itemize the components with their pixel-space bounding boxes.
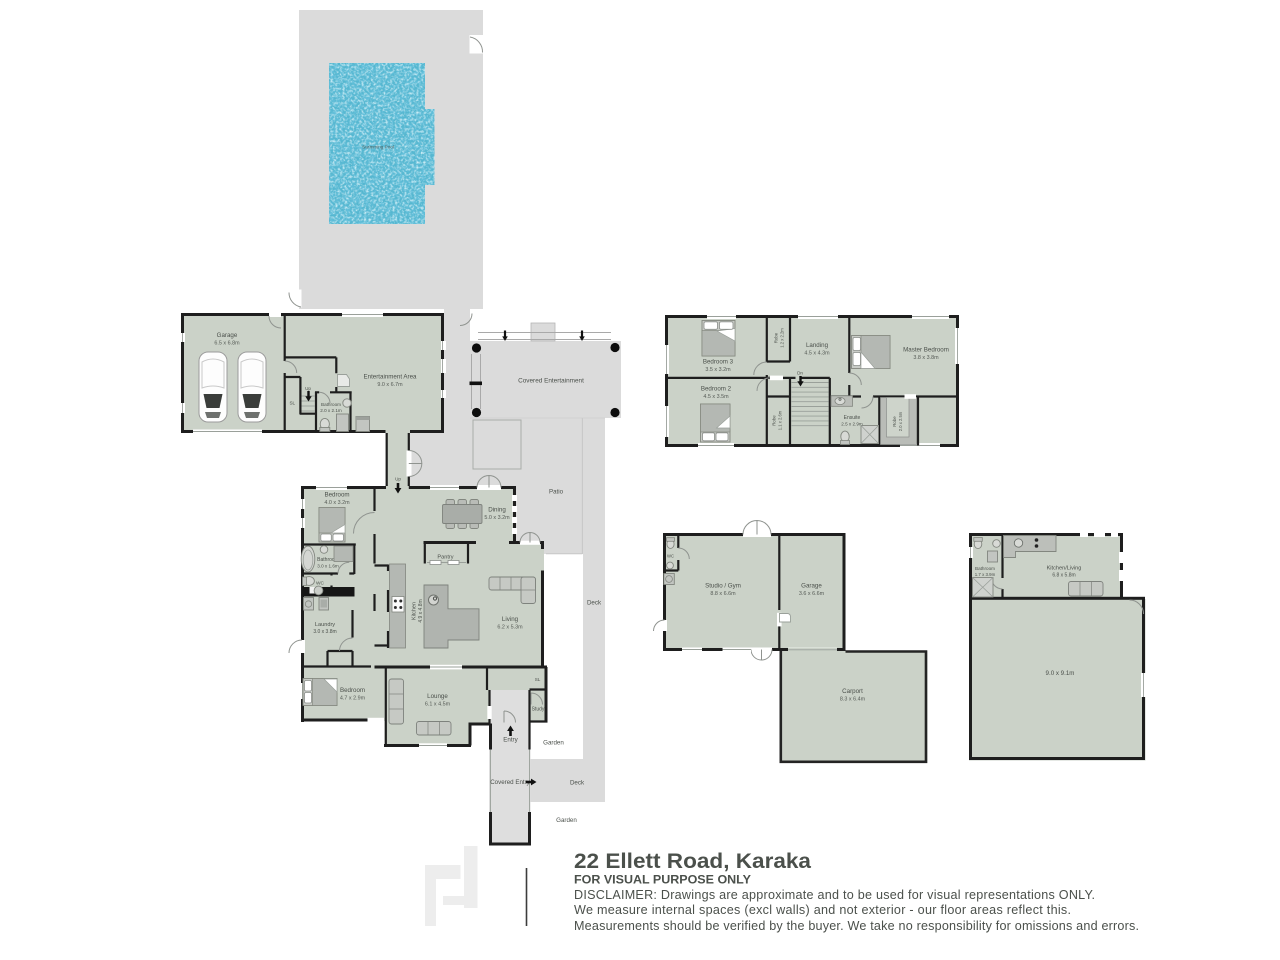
svg-text:3.6 x 6.6m: 3.6 x 6.6m	[799, 591, 825, 597]
svg-text:5.0 x 3.2m: 5.0 x 3.2m	[484, 515, 510, 521]
svg-text:Kitchen/Living: Kitchen/Living	[1047, 566, 1082, 572]
svg-text:Dining: Dining	[488, 507, 506, 514]
svg-text:Robe: Robe	[892, 416, 897, 427]
svg-text:WC: WC	[316, 581, 325, 587]
svg-text:22 Ellett Road, Karaka: 22 Ellett Road, Karaka	[574, 849, 812, 873]
svg-text:Swimming Pool: Swimming Pool	[362, 145, 394, 150]
svg-text:8.8 x 6.6m: 8.8 x 6.6m	[710, 591, 736, 597]
svg-text:4.5 x 4.3m: 4.5 x 4.3m	[804, 351, 830, 357]
svg-text:8.3 x 6.4m: 8.3 x 6.4m	[840, 697, 866, 703]
svg-text:WC: WC	[667, 554, 674, 559]
svg-text:Robe: Robe	[774, 332, 779, 343]
svg-text:4.0 x 3.2m: 4.0 x 3.2m	[324, 500, 350, 506]
svg-text:Lounge: Lounge	[427, 693, 448, 700]
svg-text:2.0 x 2.1m: 2.0 x 2.1m	[320, 408, 342, 413]
svg-text:3.5 x 3.2m: 3.5 x 3.2m	[705, 367, 731, 373]
svg-text:9.0 x 9.1m: 9.0 x 9.1m	[1046, 670, 1075, 677]
svg-text:Master Bedroom: Master Bedroom	[903, 347, 949, 354]
svg-text:Covered Entertainment: Covered Entertainment	[518, 378, 584, 385]
svg-text:Studio / Gym: Studio / Gym	[705, 583, 741, 590]
svg-text:3.0 x 1.6m: 3.0 x 1.6m	[317, 564, 339, 569]
svg-text:Deck: Deck	[587, 600, 602, 607]
svg-text:Garage: Garage	[801, 583, 822, 590]
svg-text:3.0 x 3.8m: 3.0 x 3.8m	[313, 629, 336, 635]
svg-text:1.2 x 2.2m: 1.2 x 2.2m	[780, 328, 785, 348]
svg-text:1.1 x 2.6m: 1.1 x 2.6m	[778, 410, 783, 430]
svg-text:FOR VISUAL PURPOSE ONLY: FOR VISUAL PURPOSE ONLY	[574, 873, 751, 887]
svg-text:Garage: Garage	[217, 332, 238, 339]
svg-text:Kitchen: Kitchen	[412, 602, 418, 620]
svg-text:Entertainment Area: Entertainment Area	[364, 374, 418, 381]
svg-text:6.5 x 6.8m: 6.5 x 6.8m	[214, 341, 240, 347]
svg-text:Dn: Dn	[797, 371, 803, 376]
svg-text:Garden: Garden	[556, 817, 577, 824]
svg-text:Bedroom 2: Bedroom 2	[701, 386, 732, 393]
svg-text:Bedroom: Bedroom	[324, 492, 349, 499]
svg-text:4.7 x 2.9m: 4.7 x 2.9m	[340, 696, 366, 702]
svg-text:1.7 x 3.9m: 1.7 x 3.9m	[975, 572, 996, 577]
svg-text:2.5 x 2.9m: 2.5 x 2.9m	[841, 422, 863, 427]
svg-text:3.8 x 3.8m: 3.8 x 3.8m	[913, 355, 939, 361]
svg-text:Patio: Patio	[549, 489, 564, 496]
svg-text:6.1 x 4.5m: 6.1 x 4.5m	[425, 702, 451, 708]
svg-text:Entry: Entry	[503, 737, 518, 744]
svg-text:Landing: Landing	[806, 342, 829, 349]
svg-text:Living: Living	[502, 616, 519, 623]
svg-text:2.0 x 2.5m: 2.0 x 2.5m	[898, 411, 903, 431]
svg-text:Deck: Deck	[570, 780, 585, 787]
svg-text:We measure internal spaces (ex: We measure internal spaces (excl walls) …	[574, 903, 1071, 917]
svg-text:Measurements should be verifie: Measurements should be verified by the b…	[574, 919, 1139, 933]
svg-text:6.8 x 5.8m: 6.8 x 5.8m	[1052, 573, 1075, 579]
svg-text:Bathroom: Bathroom	[321, 402, 341, 407]
svg-text:Ensuite: Ensuite	[844, 415, 861, 421]
svg-text:4.5 x 3.5m: 4.5 x 3.5m	[703, 394, 729, 400]
svg-text:Garden: Garden	[543, 740, 564, 747]
svg-text:SL: SL	[535, 677, 541, 682]
svg-text:DISCLAIMER: Drawings are appr: DISCLAIMER: Drawings are approximate and…	[574, 888, 1095, 902]
svg-text:Up: Up	[395, 477, 401, 482]
svg-text:Bedroom: Bedroom	[340, 687, 365, 694]
svg-text:Study: Study	[532, 707, 545, 713]
svg-text:Up: Up	[305, 386, 311, 391]
svg-text:Bathroom: Bathroom	[975, 566, 995, 571]
svg-text:Carport: Carport	[842, 688, 863, 695]
svg-text:SL: SL	[289, 401, 295, 406]
svg-text:Robe: Robe	[772, 415, 777, 426]
svg-text:Pantry: Pantry	[437, 555, 453, 561]
svg-text:Covered Entry: Covered Entry	[490, 779, 530, 786]
svg-text:9.0 x 6.7m: 9.0 x 6.7m	[377, 382, 403, 388]
svg-text:Bedroom 3: Bedroom 3	[703, 359, 734, 366]
svg-text:4.9 x 4.8m: 4.9 x 4.8m	[418, 599, 424, 622]
svg-text:6.2 x 5.3m: 6.2 x 5.3m	[497, 625, 523, 631]
svg-text:Laundry: Laundry	[315, 622, 335, 628]
